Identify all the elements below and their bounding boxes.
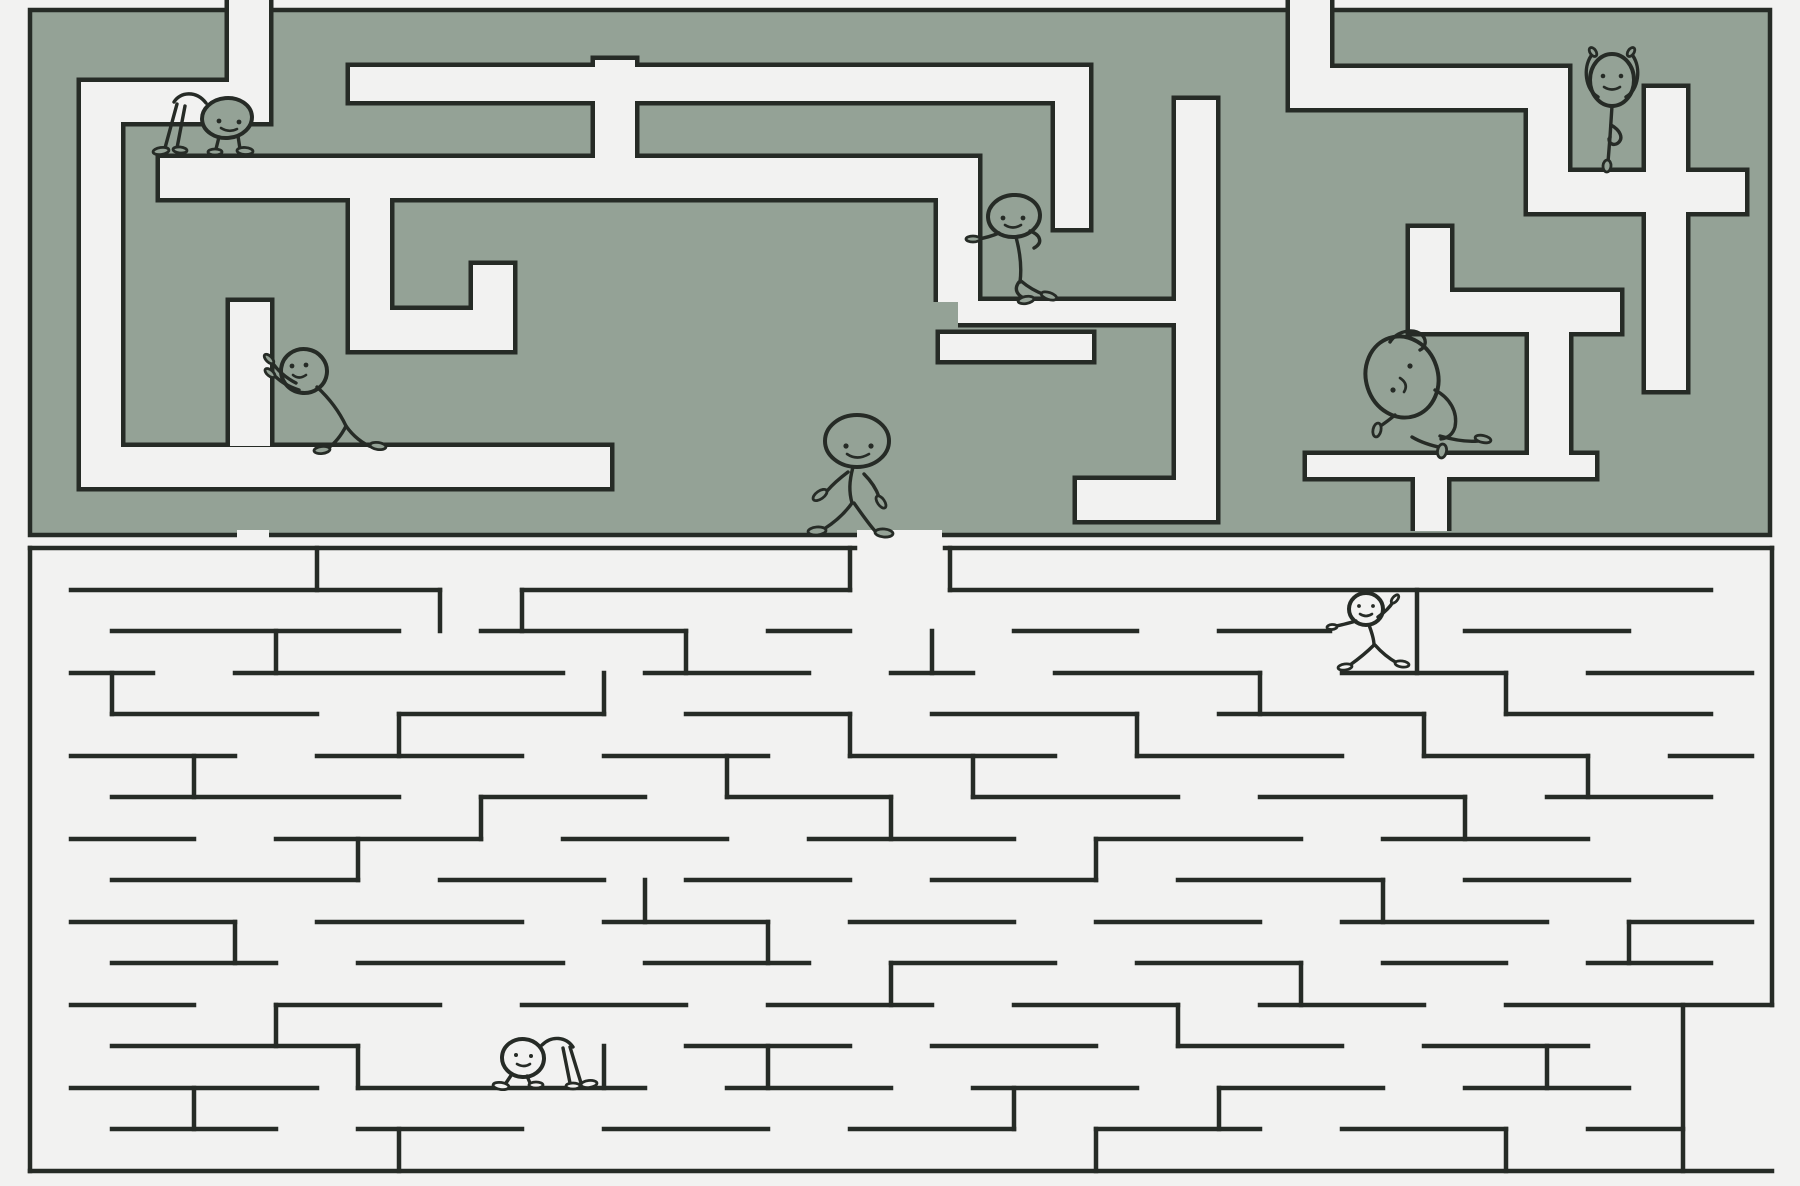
figure-limb	[542, 1038, 573, 1047]
figure-hand-foot	[808, 526, 827, 536]
figure-hand-foot	[581, 1080, 598, 1089]
figure-eye	[868, 443, 873, 448]
figure-eye	[237, 120, 242, 125]
figure-eye	[304, 363, 309, 368]
maze-opening	[237, 530, 269, 547]
figure-eye	[1371, 604, 1375, 608]
top-maze	[30, 0, 1770, 547]
figure-eye	[1601, 74, 1606, 79]
figure-limb	[506, 1074, 512, 1083]
figure-hand-foot	[173, 146, 188, 153]
figure-hand-foot	[1390, 594, 1400, 605]
figure-limb	[570, 1047, 581, 1083]
figure-hand-foot	[493, 1081, 510, 1090]
figure-limb	[1608, 137, 1610, 162]
figure-eye	[217, 119, 222, 124]
figure-eye	[1390, 387, 1395, 392]
figure-hand-foot	[153, 146, 170, 155]
figure-dancing-bottom-maze	[1327, 593, 1410, 671]
figure-limb	[1375, 645, 1397, 663]
maze-poster	[0, 0, 1800, 1186]
bottom-maze	[30, 548, 1772, 1171]
figure-hand-foot	[566, 1083, 580, 1089]
maze-opening	[857, 530, 942, 547]
figure-hand-foot	[1436, 443, 1447, 458]
figure-eye	[1357, 604, 1361, 608]
figure-eye	[843, 443, 848, 448]
figure-head	[500, 1037, 545, 1079]
figure-hand-foot	[1395, 660, 1410, 668]
figure-eye	[1407, 363, 1412, 368]
figure-eye	[1619, 74, 1624, 79]
figure-limb	[1336, 621, 1356, 626]
figure-eye	[529, 1054, 533, 1058]
figure-head	[1590, 54, 1634, 106]
figure-limb	[1369, 625, 1374, 645]
figure-hand-foot	[966, 236, 980, 242]
figure-crawling-bottom-maze	[493, 1037, 598, 1090]
figure-hand-foot	[237, 147, 253, 155]
figure-hand-foot	[875, 528, 894, 538]
figure-limb	[1350, 645, 1374, 665]
figure-head	[825, 415, 889, 467]
figure-eye	[1001, 216, 1006, 221]
maze-scene	[0, 0, 1800, 1186]
figure-hand-foot	[529, 1082, 543, 1088]
figure-hand-foot	[1327, 624, 1337, 630]
figure-limb	[563, 1048, 570, 1083]
figure-hand-foot	[1338, 663, 1353, 671]
figure-eye	[1021, 216, 1026, 221]
figure-limb	[1610, 106, 1612, 137]
figure-hand-foot	[208, 149, 222, 155]
figure-eye	[514, 1053, 518, 1057]
figure-hand-foot	[314, 446, 331, 455]
figure-eye	[290, 364, 295, 369]
figure-hand-foot	[370, 441, 387, 450]
figure-hand-foot	[1602, 160, 1611, 173]
